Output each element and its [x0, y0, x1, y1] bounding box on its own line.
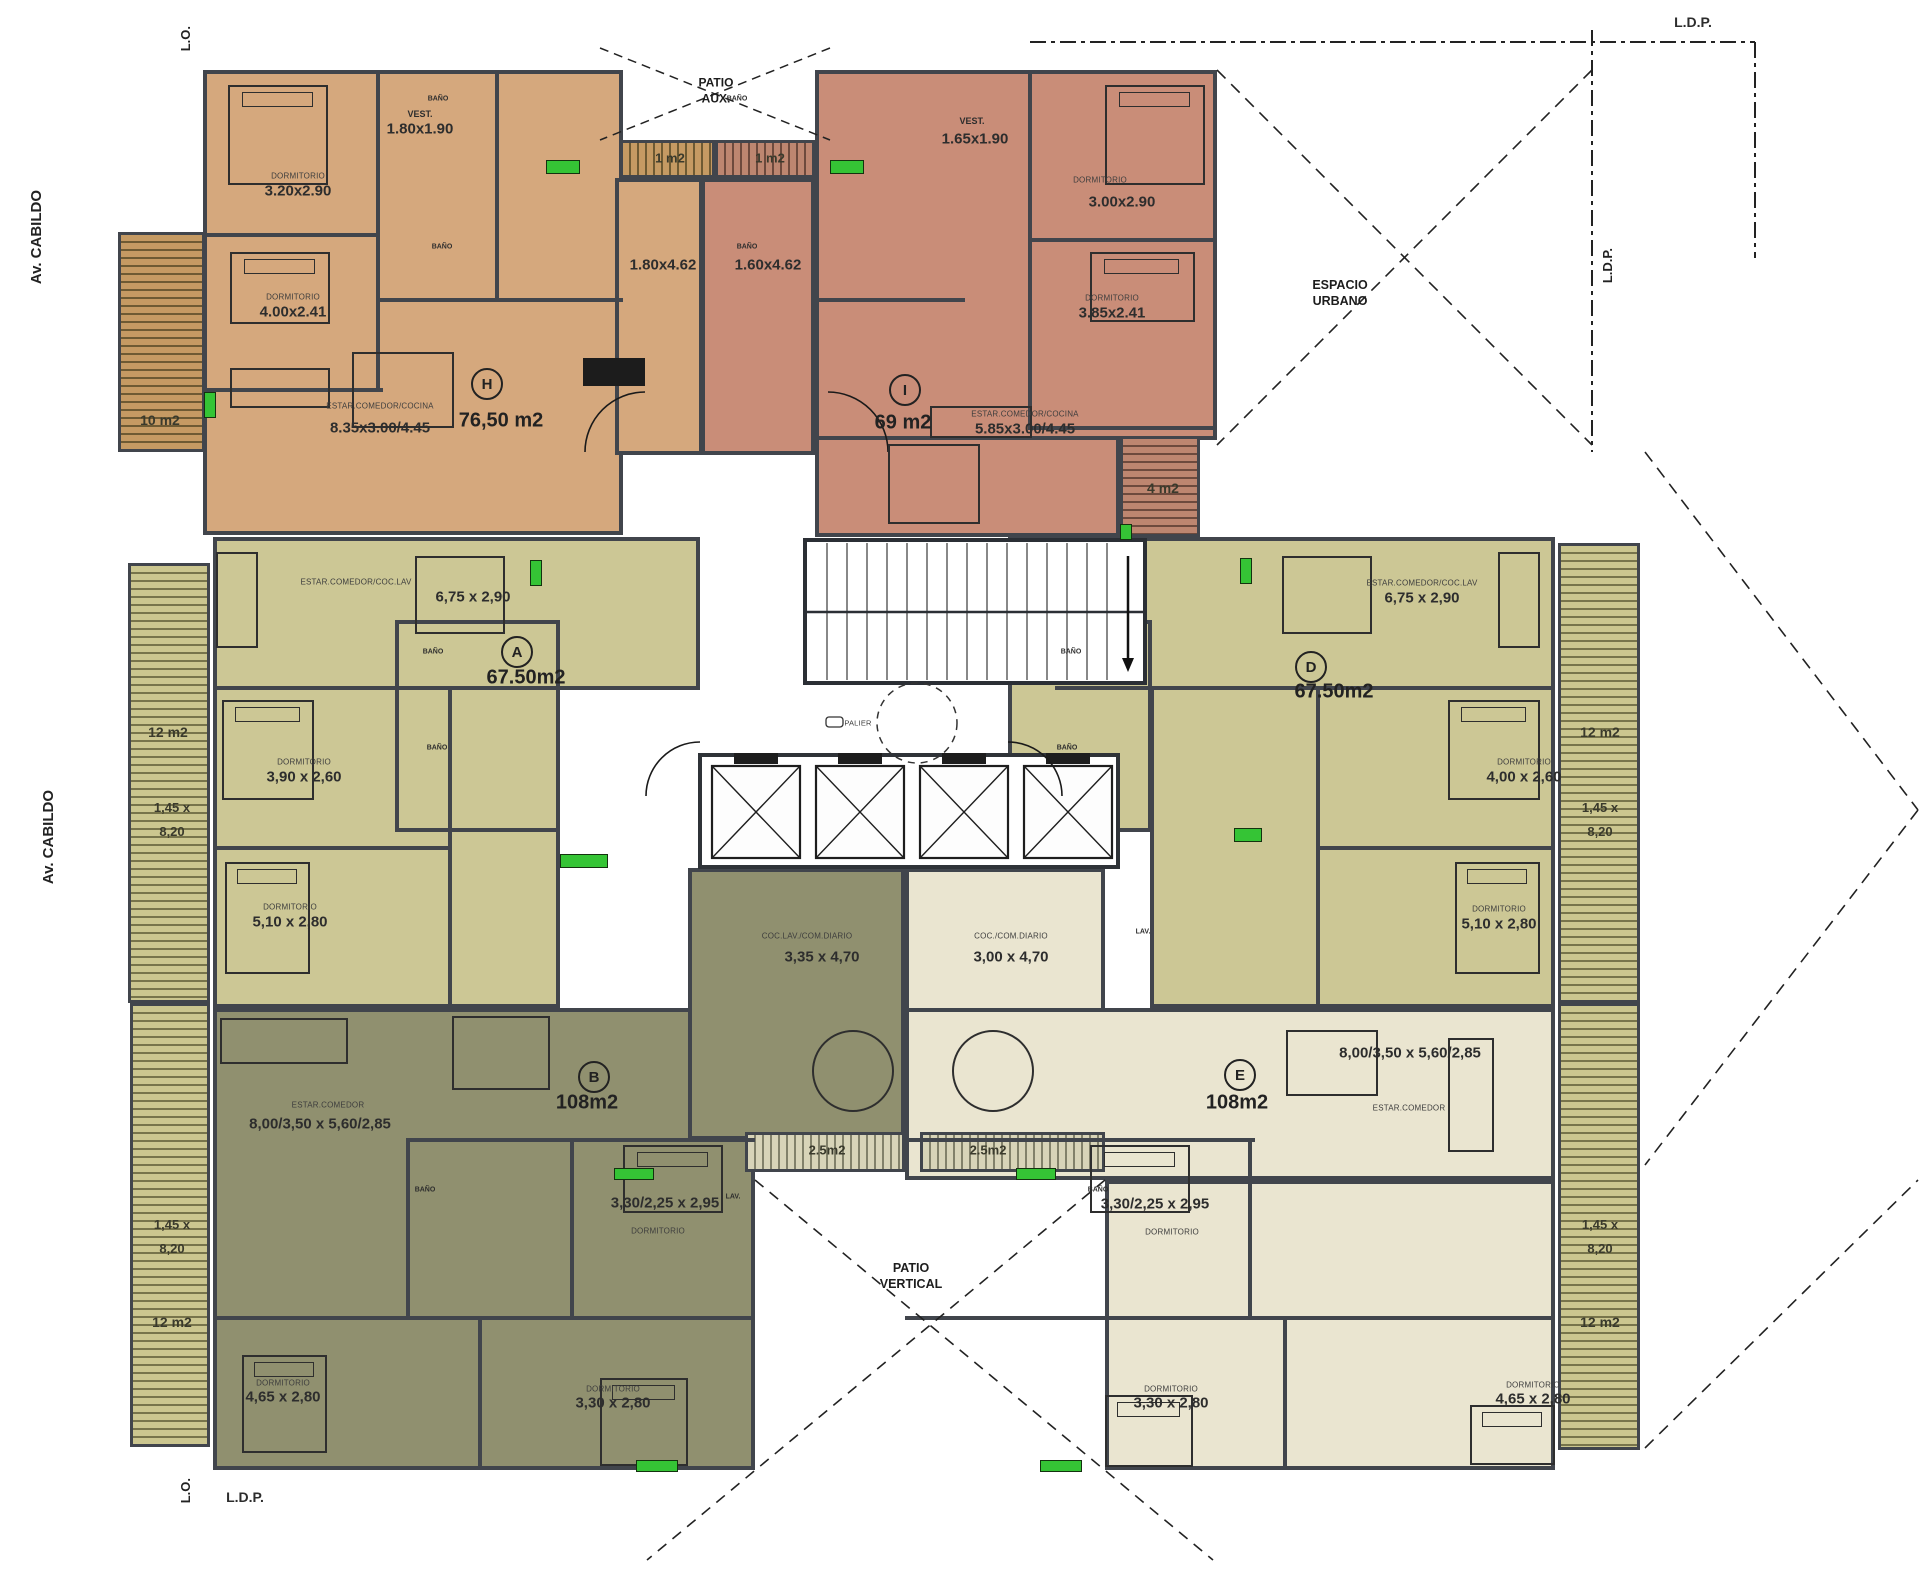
- unit-h-vest-label: VEST.: [407, 109, 432, 119]
- room-label-bano: BAÑO: [1057, 745, 1078, 752]
- avenue-label-top: Av. CABILDO: [28, 190, 45, 284]
- dining-table-icon: [352, 352, 454, 428]
- unit-e-dorm2-dims: 3,30 x 2,80: [1133, 1395, 1208, 1412]
- room-label-dormitorio: DORMITORIO: [1085, 294, 1139, 303]
- room-label-dormitorio: DORMITORIO: [1073, 176, 1127, 185]
- unit-d-living-dims: 6,75 x 2,90: [1384, 590, 1459, 607]
- window-marker: [530, 560, 542, 586]
- unit-e-balcony-dims: 1,45 x 8,20: [1580, 1213, 1620, 1261]
- unit-i-vest-dims: 1.65x1.90: [942, 131, 1009, 148]
- sofa-icon: [216, 552, 258, 648]
- unit-i-patio-balcony-area: 1 m2: [755, 151, 785, 166]
- window-marker: [830, 160, 864, 174]
- unit-e-area: 108m2: [1206, 1092, 1268, 1115]
- window-marker: [1120, 524, 1132, 540]
- room-label-bano: BAÑO: [737, 244, 758, 251]
- unit-i-area: 69 m2: [875, 412, 932, 435]
- room-label-bano: BAÑO: [1088, 1187, 1109, 1194]
- room-label-bano: BAÑO: [415, 1187, 436, 1194]
- dining-table-icon: [1286, 1030, 1378, 1096]
- unit-h-vest-dims: 1.80x1.90: [387, 121, 454, 138]
- unit-d-badge[interactable]: D: [1295, 651, 1327, 683]
- unit-e-balcony-area: 12 m2: [1580, 1314, 1620, 1330]
- unit-d-balcony-area: 12 m2: [1580, 724, 1620, 740]
- unit-h-dorm1-dims: 3.20x2.90: [265, 183, 332, 200]
- room-label-dormitorio: DORMITORIO: [277, 758, 331, 767]
- room-label-dormitorio: DORMITORIO: [1144, 1385, 1198, 1394]
- unit-i-letter: I: [903, 382, 907, 399]
- unit-e-dorm1-dims: 3,30/2,25 x 2,95: [1101, 1196, 1209, 1213]
- unit-d-living-label: ESTAR.COMEDOR/COC.LAV: [1366, 579, 1477, 588]
- dining-table-icon: [1282, 556, 1372, 634]
- unit-h-patio-balcony-area: 1 m2: [655, 151, 685, 166]
- room-label-bano: BAÑO: [423, 649, 444, 656]
- unit-i-living-dims: 5.85x3.00/4.45: [975, 421, 1075, 438]
- palier-label: PALIER: [844, 719, 871, 728]
- window-marker: [204, 392, 216, 418]
- room-label-dormitorio: DORMITORIO: [1145, 1228, 1199, 1237]
- unit-e-living-label: ESTAR.COMEDOR: [1373, 1104, 1446, 1113]
- sofa-icon: [230, 368, 330, 408]
- unit-d-letter: D: [1306, 659, 1317, 676]
- dining-table-icon: [888, 444, 980, 524]
- window-marker: [1240, 558, 1252, 584]
- unit-i-balcony-area: 4 m2: [1147, 480, 1179, 496]
- unit-d-dorm2-dims: 5,10 x 2,80: [1461, 916, 1536, 933]
- room-label-dormitorio: DORMITORIO: [631, 1227, 685, 1236]
- sofa-icon: [220, 1018, 348, 1064]
- room-label-dormitorio: DORMITORIO: [271, 172, 325, 181]
- window-marker: [1040, 1460, 1082, 1472]
- ldp-label-top-right: L.D.P.: [1674, 14, 1712, 30]
- unit-e-dorm3-dims: 4,65 x 2,80: [1495, 1391, 1570, 1408]
- unit-b-dorm3-dims: 4,65 x 2,80: [245, 1389, 320, 1406]
- unit-a-dorm1-dims: 3,90 x 2,60: [266, 769, 341, 786]
- unit-e-patio-balcony-area: 2.5m2: [970, 1143, 1007, 1158]
- unit-a-dorm2-dims: 5,10 x 2,80: [252, 914, 327, 931]
- room-label-dormitorio: DORMITORIO: [586, 1385, 640, 1394]
- unit-b-area: 108m2: [556, 1092, 618, 1115]
- lo-label-top: L.O.: [178, 26, 193, 51]
- unit-h-dorm2-dims: 4.00x2.41: [260, 304, 327, 321]
- unit-a-balcony-dims: 1,45 x 8,20: [152, 796, 192, 844]
- unit-h-area: 76,50 m2: [459, 410, 544, 433]
- window-marker: [1234, 828, 1262, 842]
- unit-i-kitchen-dims: 1.60x4.62: [735, 257, 802, 274]
- palier-circle: [877, 683, 957, 763]
- espacio-urbano-cross: [1217, 70, 1592, 445]
- window-marker: [546, 160, 580, 174]
- unit-h-kitchen-dims: 1.80x4.62: [630, 257, 697, 274]
- unit-b-living-label: ESTAR.COMEDOR: [292, 1101, 365, 1110]
- room-label-dormitorio: DORMITORIO: [256, 1379, 310, 1388]
- unit-i-living-label: ESTAR.COMEDOR/COCINA: [971, 410, 1078, 419]
- room-label-bano: BAÑO: [1061, 649, 1082, 656]
- window-marker: [636, 1460, 678, 1472]
- window-marker: [614, 1168, 654, 1180]
- unit-i-badge[interactable]: I: [889, 374, 921, 406]
- room-label-bano: BAÑO: [432, 244, 453, 251]
- window-marker: [1016, 1168, 1056, 1180]
- unit-h-living-dims: 8.35x3.00/4.45: [330, 420, 430, 437]
- unit-d-area: 67.50m2: [1295, 681, 1374, 704]
- espacio-urbano-label: ESPACIO URBANO: [1295, 277, 1385, 310]
- room-label-bano: BAÑO: [428, 96, 449, 103]
- unit-a-living-label: ESTAR.COMEDOR/COC.LAV: [300, 578, 411, 587]
- bed-icon: [1470, 1405, 1555, 1465]
- unit-b-badge[interactable]: B: [578, 1061, 610, 1093]
- unit-a-letter: A: [512, 644, 523, 661]
- patio-vertical-label: PATIO VERTICAL: [864, 1260, 959, 1293]
- room-label-bano: BAÑO: [727, 96, 748, 103]
- lo-label-bottom: L.O.: [178, 1478, 193, 1503]
- ldp-label-right: L.D.P.: [1600, 248, 1615, 283]
- unit-h-badge[interactable]: H: [471, 368, 503, 400]
- room-label-dormitorio: DORMITORIO: [263, 903, 317, 912]
- unit-a-living-dims: 6,75 x 2,90: [435, 589, 510, 606]
- unit-b-living-dims: 8,00/3,50 x 5,60/2,85: [249, 1116, 391, 1133]
- room-label-dormitorio: DORMITORIO: [1506, 1381, 1560, 1390]
- unit-a-badge[interactable]: A: [501, 636, 533, 668]
- room-label-dormitorio: DORMITORIO: [1497, 758, 1551, 767]
- unit-e-letter: E: [1235, 1067, 1245, 1084]
- palier-icon: [826, 717, 843, 727]
- unit-e-kitchen-label: COC./COM.DIARIO: [974, 932, 1048, 941]
- ldp-label-bottom: L.D.P.: [226, 1489, 264, 1505]
- unit-e-kitchen-dims: 3,00 x 4,70: [973, 949, 1048, 966]
- unit-b-balcony-area: 12 m2: [152, 1314, 192, 1330]
- unit-h-living-label: ESTAR.COMEDOR/COCINA: [326, 402, 433, 411]
- room-label-lav: LAV.: [1136, 929, 1151, 936]
- bed-icon: [228, 85, 328, 185]
- unit-h-balcony-area: 10 m2: [140, 412, 180, 428]
- unit-a-area: 67.50m2: [487, 667, 566, 690]
- room-label-bano: BAÑO: [427, 745, 448, 752]
- unit-b-dorm2-dims: 3,30 x 2,80: [575, 1395, 650, 1412]
- room-label-lav: LAV.: [726, 1194, 741, 1201]
- unit-b-kitchen-dims: 3,35 x 4,70: [784, 949, 859, 966]
- window-marker: [560, 854, 608, 868]
- unit-a-balcony-area: 12 m2: [148, 724, 188, 740]
- room-label-dormitorio: DORMITORIO: [266, 293, 320, 302]
- sofa-icon: [1498, 552, 1540, 648]
- unit-b-letter: B: [589, 1069, 600, 1086]
- unit-h-letter: H: [482, 376, 493, 393]
- unit-i-dorm1-dims: 3.00x2.90: [1089, 194, 1156, 211]
- round-table-icon: [812, 1030, 894, 1112]
- unit-i-dorm2-dims: 3.85x2.41: [1079, 305, 1146, 322]
- room-label-dormitorio: DORMITORIO: [1472, 905, 1526, 914]
- unit-b-patio-balcony-area: 2.5m2: [809, 1143, 846, 1158]
- unit-b-dorm1-dims: 3,30/2,25 x 2,95: [611, 1195, 719, 1212]
- side-boundary-cross: [1645, 452, 1918, 1448]
- service-shaft: [583, 358, 645, 386]
- unit-d-dorm1-dims: 4,00 x 2,60: [1486, 769, 1561, 786]
- bed-icon: [1105, 85, 1205, 185]
- unit-e-badge[interactable]: E: [1224, 1059, 1256, 1091]
- avenue-label-bottom: Av. CABILDO: [40, 790, 57, 884]
- unit-b-balcony-dims: 1,45 x 8,20: [152, 1213, 192, 1261]
- unit-i-vest-label: VEST.: [959, 116, 984, 126]
- staircase: [805, 540, 1145, 683]
- unit-d-balcony-dims: 1,45 x 8,20: [1580, 796, 1620, 844]
- unit-b-kitchen-label: COC.LAV./COM.DIARIO: [762, 932, 852, 941]
- dining-table-icon: [452, 1016, 550, 1090]
- floor-plan: L.O. Av. CABILDO Av. CABILDO L.O. L.D.P.…: [0, 0, 1920, 1590]
- round-table-icon: [952, 1030, 1034, 1112]
- unit-e-living-dims: 8,00/3,50 x 5,60/2,85: [1339, 1045, 1481, 1062]
- patio-vertical-cross: [647, 1180, 1213, 1560]
